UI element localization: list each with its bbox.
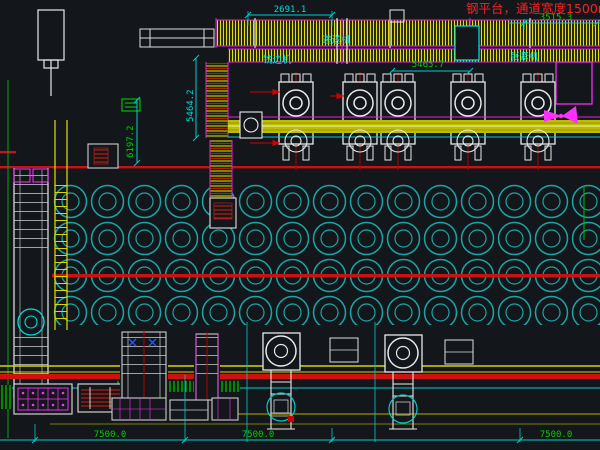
green-hatch-block-left [0,385,12,409]
dim-text-bottom-right[interactable]: 7500.0 [540,430,573,440]
left-mid-machine[interactable] [88,144,118,168]
discharge-machine-detail[interactable] [14,384,72,414]
left-rack-structure[interactable] [12,168,52,400]
pass-line-band [228,120,600,133]
dim-text-vert-b[interactable]: 6197.2 [126,125,136,158]
pipe-storage-circle-grid[interactable] [52,183,600,325]
dim-text-bottom-left[interactable]: 7500.0 [94,430,127,440]
machine-label-c[interactable]: 张紧机 [510,51,539,63]
dim-text-bottom-mid[interactable]: 7500.0 [242,430,275,440]
dim-text-vert-a[interactable]: 5464.2 [186,89,196,122]
dim-text-mid[interactable]: 5465.7 [412,60,445,70]
dim-text-top-left[interactable]: 2691.1 [274,5,307,15]
machine-label-b[interactable]: 递送机 [322,34,351,46]
conveyor-cyan-box[interactable] [455,26,479,60]
machine-label-a[interactable]: 铣边机 [263,54,292,66]
rack-base-machines[interactable] [112,398,238,420]
cad-drawing[interactable]: 2691.1 3515.3 5465.7 5464.2 6197.2 7500.… [0,0,600,450]
cad-viewport[interactable]: 2691.1 3515.3 5465.7 5464.2 6197.2 7500.… [0,0,600,450]
drawing-title-annotation[interactable]: 钢平台，通道宽度1500mm [466,1,600,16]
red-marker-square [288,416,294,422]
